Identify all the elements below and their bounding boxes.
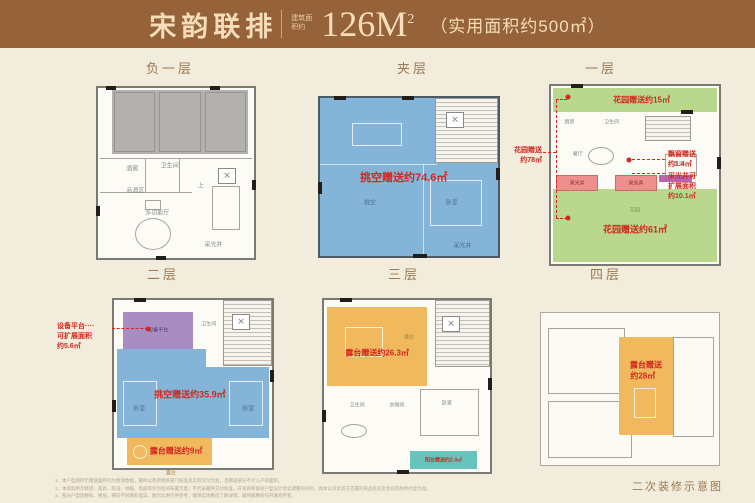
bay-window-line2: 约1.4㎡ <box>668 160 696 170</box>
plan-basement: 酒窖 卫生间 品酒区 多功能厅 采光井 上 <box>96 86 256 260</box>
annotation-dot <box>627 158 632 163</box>
room-light-well: 采光井 <box>453 240 471 249</box>
wall-segment <box>134 298 146 302</box>
room-bathroom: 卫生间 <box>161 160 179 169</box>
room-bedroom-left: 卧室 <box>133 403 145 412</box>
elevator-icon <box>446 112 464 128</box>
stairwell <box>645 116 691 141</box>
usable-area-text: （实用面积约500㎡） <box>430 12 605 37</box>
building-area-prefix: 建筑面积约 <box>291 15 317 33</box>
room-bedroom: 卧室 <box>446 198 458 207</box>
terrace-strip: 露台赠送约9㎡ <box>127 438 212 465</box>
garden-bottom-gift-text: 花园赠送约61㎡ <box>603 223 667 236</box>
terrace-gift-text: 露台赠送约9㎡ <box>150 446 202 457</box>
wall-segment <box>106 86 116 90</box>
room-light-well: 采光井 <box>204 240 222 249</box>
roof-panel <box>548 328 625 394</box>
annotation-connector <box>543 152 556 153</box>
table-round <box>135 218 171 250</box>
wall-line <box>179 158 180 192</box>
wall-segment <box>717 157 721 169</box>
annotation-connector <box>632 159 665 160</box>
room-multi-hall: 多功能厅 <box>145 208 169 217</box>
void-gift-text: 挑空赠送约35.9㎡ <box>154 388 226 401</box>
outdoor-table <box>634 388 656 418</box>
roof-panel <box>673 337 714 436</box>
bay-window-annotation: 飘窗赠送 约1.4㎡ <box>668 150 696 170</box>
room-bathroom: 卫生间 <box>201 320 216 327</box>
terrace-gift-text: 露台赠送约26.3㎡ <box>345 347 409 358</box>
label-floor3: 三层 <box>388 264 420 283</box>
room-void: 挑空 <box>364 198 376 207</box>
area-number: 126M <box>321 4 407 44</box>
equipment-platform-block: 设备平台 <box>123 312 193 349</box>
wall-segment <box>402 96 414 100</box>
wall-segment <box>318 182 322 194</box>
plan-floor3: 露台 露台赠送约26.3㎡ 阳台赠送约2.4㎡ 卫生间 衣帽间 卧室 <box>322 298 492 474</box>
wall-segment <box>322 410 326 422</box>
wall-line <box>100 158 252 159</box>
equipment-line2: 可扩展面积 <box>57 332 94 342</box>
label-floor4: 四层 <box>590 264 622 283</box>
bed <box>420 389 478 436</box>
annotation-connector <box>112 328 148 329</box>
terrace-decor <box>133 445 147 459</box>
parking-stall <box>159 92 200 152</box>
elevator-icon <box>442 316 460 332</box>
void-gift-text: 挑空赠送约74.6㎡ <box>360 169 447 185</box>
project-title: 宋韵联排 <box>149 5 277 44</box>
wall-segment <box>252 180 256 190</box>
room-wine-cellar: 酒窖 <box>126 163 138 172</box>
header-banner: 宋韵联排 建筑面积约 126M2 （实用面积约500㎡） <box>0 0 755 48</box>
room-light-well-1: 采光井 <box>570 180 585 187</box>
room-equipment: 设备平台 <box>148 327 168 334</box>
dining-table <box>588 147 614 165</box>
equipment-annotation: 设备平台···· 可扩展面积 约5.6㎡ <box>57 322 94 351</box>
bay-window-line1: 飘窗赠送 <box>668 150 696 160</box>
room-bathroom: 卫生间 <box>350 401 365 408</box>
plan-floor2: 设备平台 露台赠送约9㎡ 卫生间 卧室 卧室 露台 挑空赠送约35.9㎡ <box>112 298 274 470</box>
terrace-area: 露台 露台赠送约26.3㎡ <box>327 307 427 386</box>
label-mezzanine: 夹层 <box>397 58 429 77</box>
wall-line <box>145 158 146 192</box>
stairs-up-label: 上 <box>198 180 204 189</box>
wall-segment <box>488 378 492 390</box>
wall-segment <box>112 400 116 412</box>
wall-segment <box>156 256 166 260</box>
wall-line <box>320 164 437 165</box>
label-floor1: 一层 <box>585 58 617 77</box>
room-kitchen: 厨房 <box>564 118 574 125</box>
render-note: 二次装修示意图 <box>632 478 723 494</box>
equipment-line3: 约5.6㎡ <box>57 342 94 352</box>
annotation-connector <box>556 99 567 100</box>
garden-side-line2: 约78㎡ <box>488 156 542 166</box>
equipment-line1: 设备平台···· <box>57 322 94 332</box>
annotation-connector <box>632 173 665 174</box>
annotation-connector <box>556 100 557 218</box>
wall-segment <box>270 370 274 382</box>
light-well-block: 采光井 <box>615 175 657 191</box>
disclaimer-line: 1、本户型图所示赠送面积均为暂测数据，最终以政府相关部门核准及实际交付为准，且赠… <box>55 477 625 485</box>
terrace-gift-line2: 约28㎡ <box>630 371 655 382</box>
wall-segment <box>496 168 500 180</box>
wall-segment <box>413 254 427 258</box>
disclaimer-block: 1、本户型图所示赠送面积均为暂测数据，最终以政府相关部门核准及实际交付为准，且赠… <box>55 477 625 500</box>
wall-segment <box>681 110 693 114</box>
room-bedroom: 卧室 <box>442 400 452 407</box>
wall-segment <box>210 86 220 90</box>
balcony-gift-text: 阳台赠送约2.4㎡ <box>425 456 462 463</box>
terrace-area: 露台赠送 约28㎡ <box>619 337 672 434</box>
parking-stall <box>114 92 155 152</box>
disclaimer-line: 3、部分户型因楼栋、楼层、朝向不同略有差异，图示比例仅供参考，敬请实地看房了解详… <box>55 492 625 500</box>
label-basement: 负一层 <box>146 58 194 77</box>
annotation-connector <box>556 218 567 219</box>
room-bathroom: 卫生间 <box>604 118 619 125</box>
terrace-gift-line1: 露台赠送 <box>630 359 662 370</box>
stairwell <box>435 300 490 367</box>
garden-top-gift-text: 花园赠送约15㎡ <box>613 95 670 106</box>
room-light-well-2: 采光井 <box>628 180 643 187</box>
plan-mezzanine: 挑空赠送约74.6㎡ 挑空 卧室 采光井 <box>318 96 500 258</box>
garden-side-annotation: 花园赠送 约78㎡ <box>488 146 542 166</box>
garden-side-line1: 花园赠送 <box>488 146 542 156</box>
parking-stall <box>205 92 246 152</box>
wall-segment <box>96 206 100 216</box>
bathtub <box>341 424 367 438</box>
elevator-icon <box>218 168 236 184</box>
light-well-line1: 采光井可 <box>668 172 696 182</box>
area-superscript: 2 <box>407 12 414 27</box>
room-cloakroom: 衣帽间 <box>390 401 405 408</box>
header-divider <box>281 10 282 38</box>
label-floor2: 二层 <box>147 264 179 283</box>
garden-top: 花园赠送约15㎡ <box>553 88 717 112</box>
elevator-icon <box>232 314 250 330</box>
stair-box <box>212 186 240 230</box>
room-dining: 餐厅 <box>573 150 583 157</box>
wall-line <box>100 192 192 193</box>
wall-segment <box>340 298 352 302</box>
light-well-block: 采光井 <box>556 175 598 191</box>
desk <box>352 123 402 146</box>
wall-segment <box>397 470 409 474</box>
light-well-line2: 扩展面积 <box>668 182 696 192</box>
light-well-annotation: 采光井可 扩展面积 约10.1㎡ <box>668 172 696 201</box>
room-tasting-area: 品酒区 <box>126 186 144 195</box>
plan-floor4: 露台赠送 约28㎡ <box>540 312 720 466</box>
room-bedroom-right: 卧室 <box>242 403 254 412</box>
building-area-value: 126M2 <box>321 6 414 42</box>
wall-segment <box>571 84 583 88</box>
room-garden: 花园 <box>630 206 640 213</box>
disclaimer-line: 2、本资料所示装修、家具、陈设、绿植、电器等仅为空间布置示意，不代表最终交付标准… <box>55 485 625 493</box>
light-well-line3: 约10.1㎡ <box>668 192 696 202</box>
balcony-strip: 阳台赠送约2.4㎡ <box>410 451 476 468</box>
parking-area <box>112 90 248 154</box>
wall-segment <box>334 96 346 100</box>
room-terrace: 露台 <box>166 470 176 477</box>
stairwell <box>223 300 272 366</box>
room-terrace: 露台 <box>404 333 414 340</box>
